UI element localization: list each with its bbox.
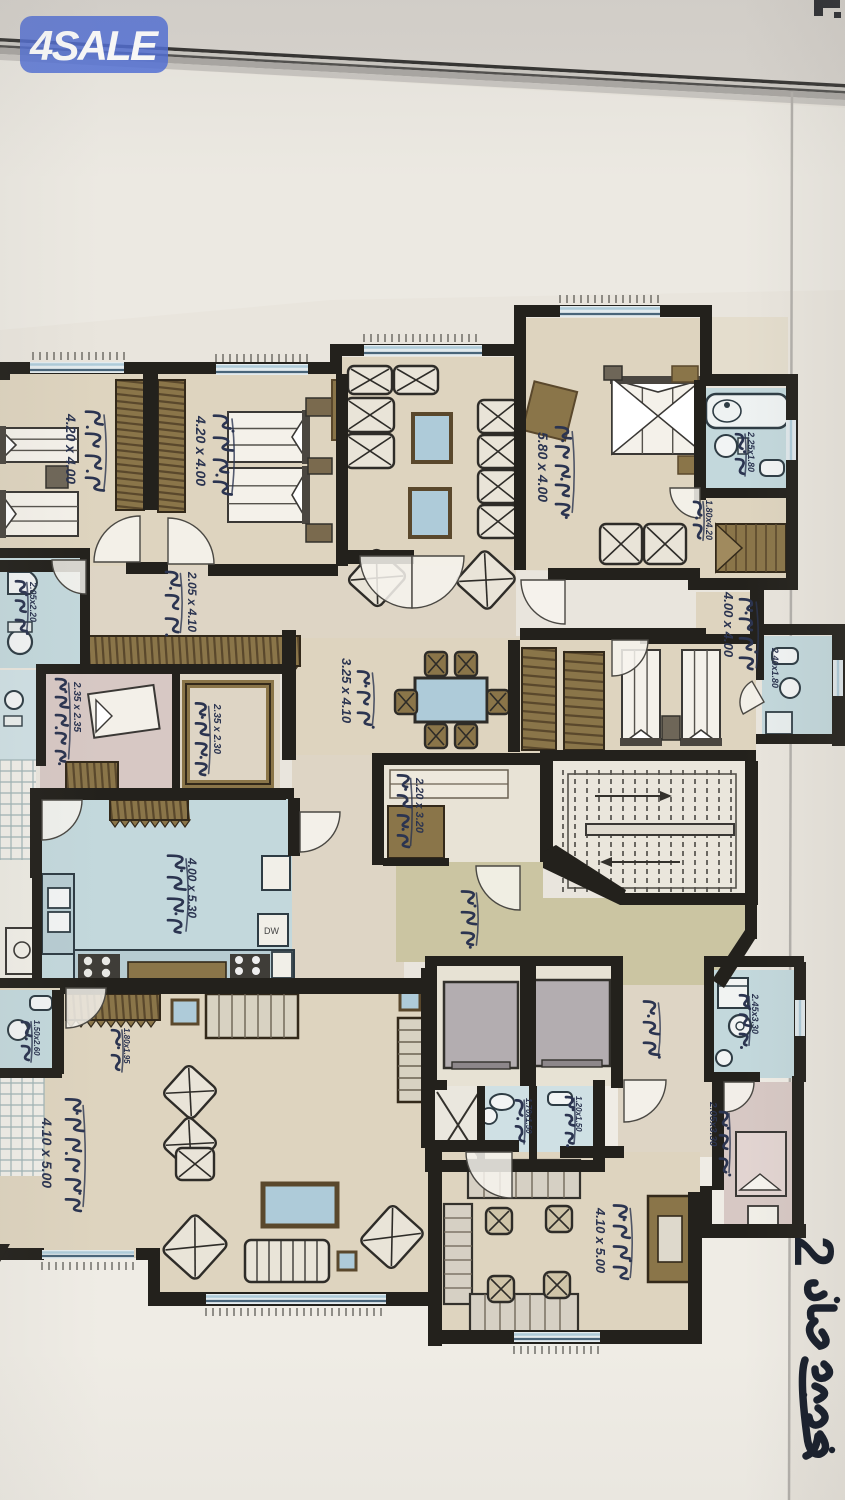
svg-text:2: 2 <box>783 1236 845 1267</box>
